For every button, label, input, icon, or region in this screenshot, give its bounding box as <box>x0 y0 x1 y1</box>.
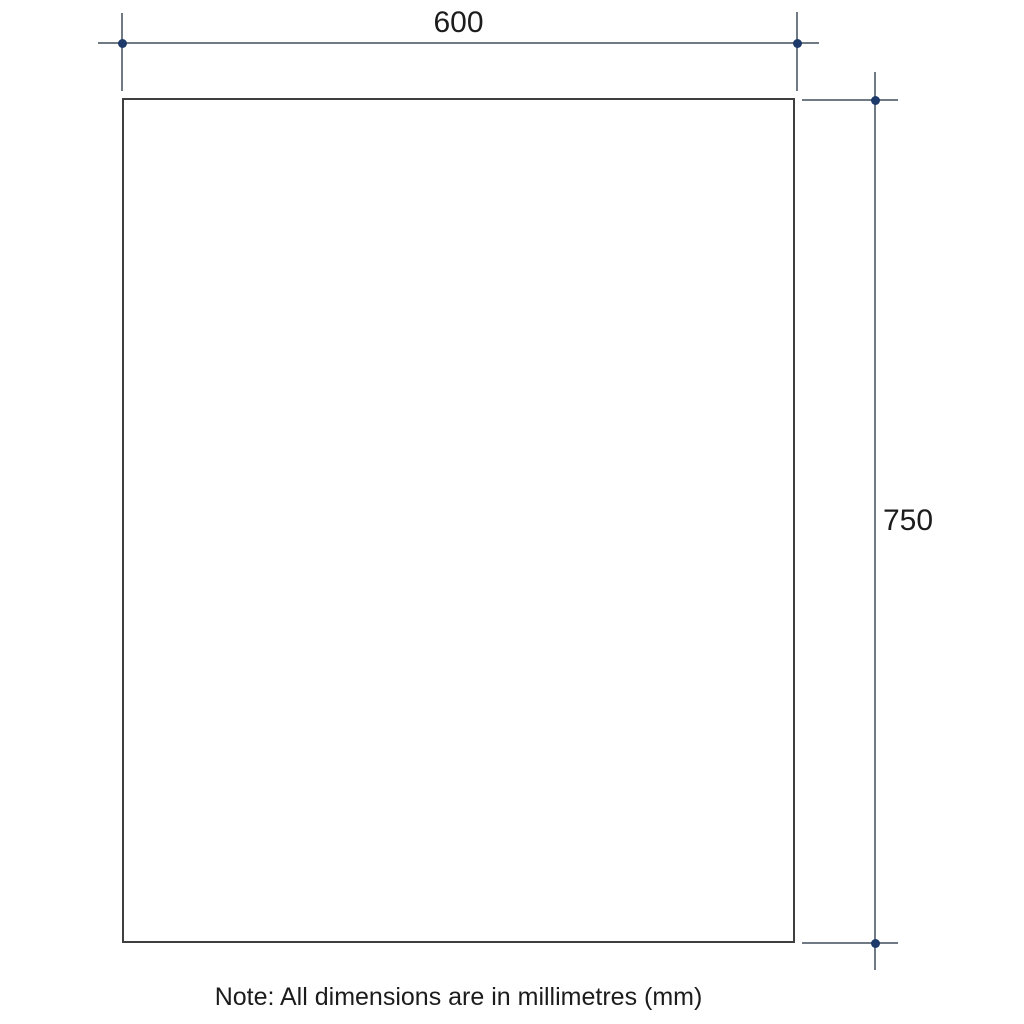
panel-outline-rectangle <box>122 98 795 943</box>
dimension-marker-dot <box>118 39 127 48</box>
dimension-marker-dot <box>793 39 802 48</box>
dimension-marker-dot <box>871 96 880 105</box>
height-extension-line-bottom <box>802 942 898 944</box>
height-dimension-line <box>874 72 876 970</box>
dimension-diagram: 600 750 Note: All dimensions are in mill… <box>0 0 1024 1024</box>
width-dimension-line <box>98 42 819 44</box>
height-extension-line-top <box>802 99 898 101</box>
width-dimension-label: 600 <box>98 8 819 38</box>
dimension-marker-dot <box>871 939 880 948</box>
units-note: Note: All dimensions are in millimetres … <box>122 983 795 1012</box>
height-dimension-label: 750 <box>883 506 933 536</box>
